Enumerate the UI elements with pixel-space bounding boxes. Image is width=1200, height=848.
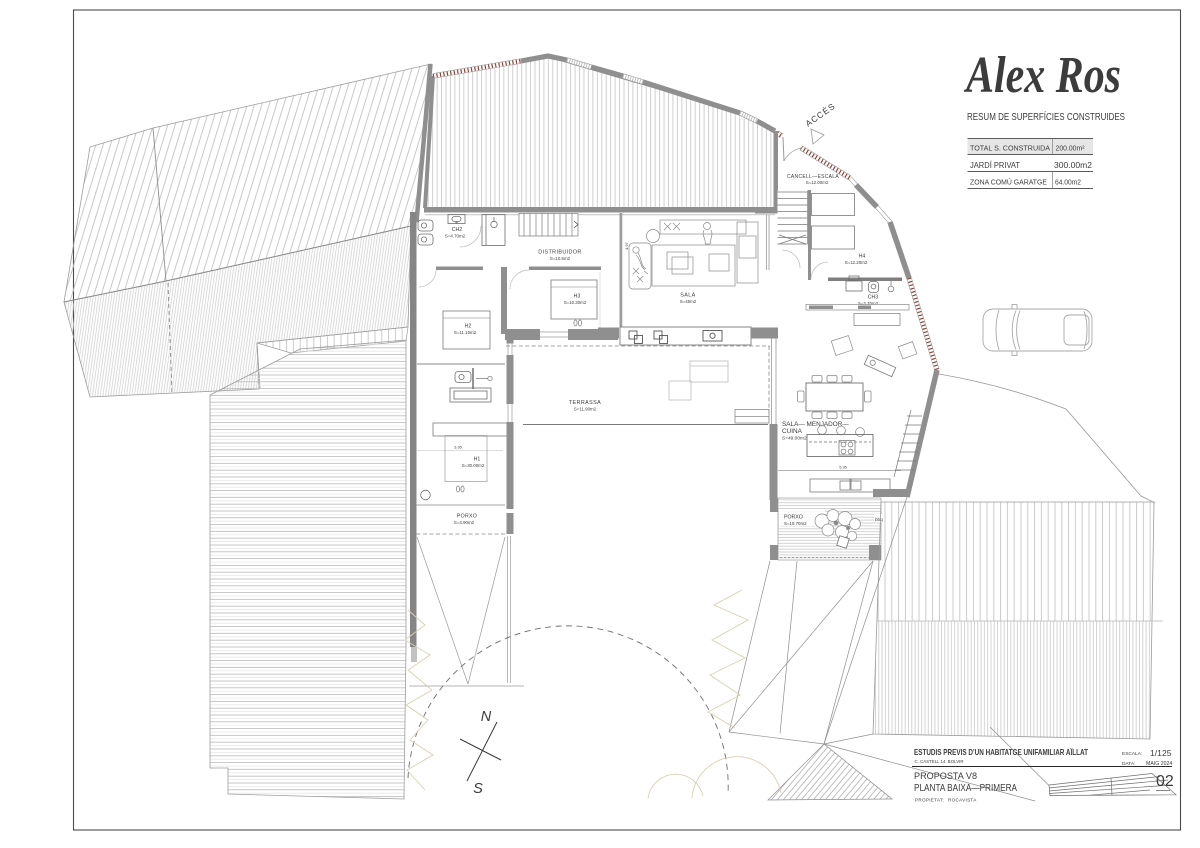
svg-text:S=4.70m2: S=4.70m2 [445, 234, 466, 239]
svg-text:S=10.6m2: S=10.6m2 [550, 256, 571, 261]
svg-text:S=10.30m2: S=10.30m2 [564, 300, 587, 305]
svg-text:PLANTA BAIXA—PRIMERA: PLANTA BAIXA—PRIMERA [914, 783, 1017, 794]
svg-text:PROPIETAT:: PROPIETAT: [915, 798, 944, 803]
svg-text:Alex Ros: Alex Ros [964, 47, 1121, 104]
svg-text:ROCAVISTA: ROCAVISTA [948, 798, 977, 803]
svg-text:TERRASSA: TERRASSA [569, 400, 601, 406]
svg-text:H2: H2 [465, 324, 472, 330]
svg-text:ESTUDIS PREVIS D’UN HABITAT: ESTUDIS PREVIS D’UN HABITATGE UNIFAMILIA… [914, 747, 1088, 757]
svg-text:64.00m2: 64.00m2 [1055, 178, 1081, 187]
svg-text:ZONA COMÚ GARATGE: ZONA COMÚ GARATGE [970, 178, 1047, 187]
svg-text:SALA: SALA [680, 293, 695, 299]
svg-text:H4: H4 [859, 254, 866, 260]
svg-text:H1: H1 [474, 457, 481, 463]
svg-text:S=12.00m2: S=12.00m2 [806, 180, 829, 185]
svg-text:S=11.10m2: S=11.10m2 [454, 330, 477, 335]
svg-text:ESCALA:: ESCALA: [1122, 751, 1142, 757]
svg-text:4.97: 4.97 [624, 241, 629, 250]
svg-text:5.35: 5.35 [839, 465, 847, 470]
svg-text:1/125: 1/125 [1150, 748, 1172, 758]
svg-text:CH2: CH2 [452, 227, 462, 233]
svg-text:S=45m2: S=45m2 [680, 299, 697, 304]
svg-text:S=12.20m2: S=12.20m2 [845, 260, 868, 265]
svg-text:S=11.90m2: S=11.90m2 [574, 407, 597, 412]
svg-text:S=49.00m2: S=49.00m2 [782, 436, 807, 442]
svg-text:JARDÍ PRIVAT: JARDÍ PRIVAT [970, 160, 1020, 170]
svg-text:CH3: CH3 [868, 295, 878, 301]
svg-text:300.00m2: 300.00m2 [1054, 160, 1092, 170]
svg-text:SALA— MENJADOR—: SALA— MENJADOR— [782, 421, 849, 428]
svg-text:PORXO: PORXO [784, 515, 803, 521]
svg-text:DISTRIBUIDOR: DISTRIBUIDOR [538, 250, 581, 256]
svg-text:3.95: 3.95 [454, 445, 462, 450]
svg-text:CUINA: CUINA [782, 428, 803, 435]
svg-text:RESUM DE SUPERFÍCIES CONSTRUID: RESUM DE SUPERFÍCIES CONSTRUIDES [967, 110, 1125, 123]
svg-text:02: 02 [1156, 773, 1174, 790]
svg-text:200.00m²: 200.00m² [1056, 144, 1085, 153]
svg-text:C. CASTELL 14. BOLVIR: C. CASTELL 14. BOLVIR [915, 759, 965, 764]
svg-text:S=4.90m2: S=4.90m2 [454, 520, 475, 525]
svg-text:PROPOSTA V8: PROPOSTA V8 [914, 771, 977, 782]
svg-text:S=10.70m2: S=10.70m2 [784, 521, 807, 526]
svg-text:PORXO: PORXO [457, 514, 477, 520]
svg-text:TOTAL S. CONSTRUIDA: TOTAL S. CONSTRUIDA [970, 144, 1050, 153]
svg-text:S: S [473, 781, 483, 797]
svg-text:N: N [481, 709, 492, 725]
svg-text:H3: H3 [574, 294, 581, 300]
svg-text:S=30.00m2: S=30.00m2 [462, 463, 485, 468]
